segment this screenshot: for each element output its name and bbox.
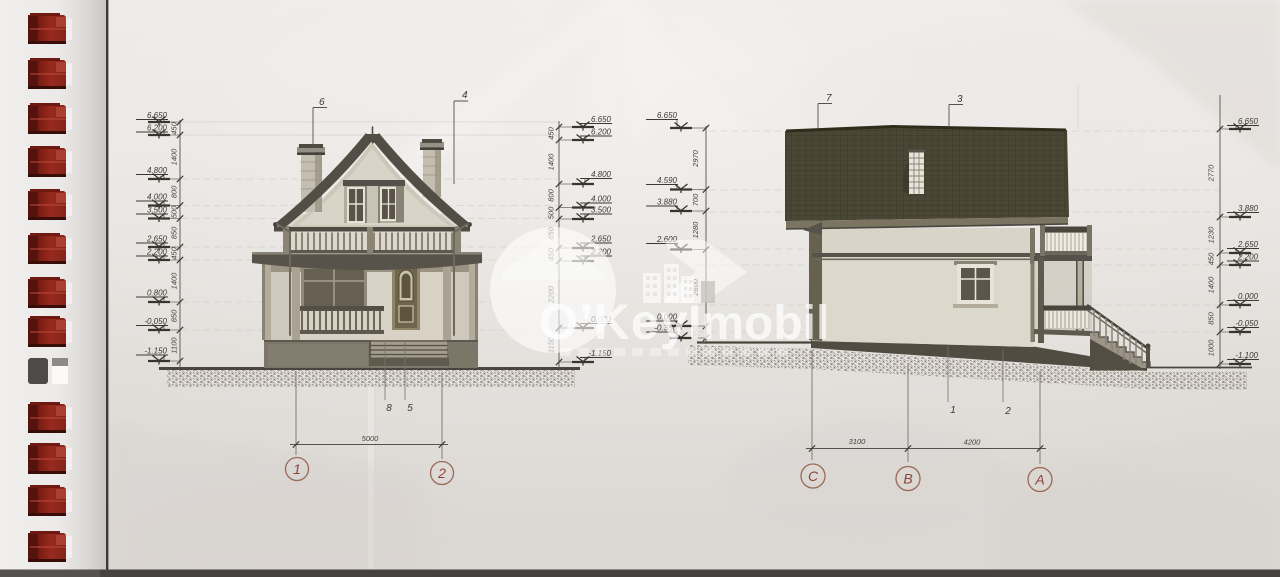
svg-text:6.650: 6.650 [147,111,168,120]
svg-text:2.200: 2.200 [1237,253,1259,262]
svg-text:4.000: 4.000 [591,195,612,204]
svg-text:B: B [903,471,912,487]
svg-text:C: C [808,468,819,484]
svg-text:O’Key: O’Key [539,294,689,350]
svg-text:4: 4 [462,90,468,101]
svg-text:6.650: 6.650 [591,115,612,124]
svg-text:500: 500 [170,205,179,218]
svg-text:-0.050: -0.050 [1235,319,1258,328]
svg-text:800: 800 [547,188,556,201]
svg-text:2: 2 [1004,406,1011,417]
svg-text:3.880: 3.880 [1238,204,1259,213]
svg-text:0.800: 0.800 [147,289,168,298]
svg-text:-0.050: -0.050 [144,317,167,326]
svg-text:Imobil: Imobil [688,297,829,350]
svg-text:5: 5 [407,403,413,414]
svg-text:6: 6 [319,97,325,108]
svg-text:-1.150: -1.150 [144,347,167,356]
svg-text:450: 450 [170,121,179,134]
svg-text:6.200: 6.200 [147,124,168,133]
svg-text:2: 2 [437,465,446,481]
svg-text:5000: 5000 [362,434,380,443]
svg-text:3100: 3100 [849,437,867,446]
svg-text:850: 850 [170,309,179,322]
svg-text:1400: 1400 [170,272,179,290]
svg-text:700: 700 [691,193,700,206]
svg-text:1: 1 [950,405,956,416]
svg-text:2970: 2970 [691,149,700,168]
svg-text:6.650: 6.650 [657,111,678,120]
svg-text:0.000: 0.000 [1238,292,1259,301]
svg-text:1100: 1100 [170,337,179,354]
svg-text:1400: 1400 [547,153,556,171]
svg-text:4.800: 4.800 [591,170,612,179]
svg-text:3.500: 3.500 [591,206,612,215]
svg-text:A: A [1034,472,1044,488]
svg-text:6.200: 6.200 [591,128,612,137]
svg-text:800: 800 [170,185,179,198]
svg-text:4200: 4200 [964,438,982,447]
svg-text:6.650: 6.650 [1238,117,1259,126]
svg-text:3.880: 3.880 [657,198,678,207]
svg-text:500: 500 [547,206,556,219]
svg-text:2770: 2770 [1207,164,1216,183]
svg-text:450: 450 [547,126,556,139]
svg-text:850: 850 [1207,311,1216,324]
svg-text:8: 8 [386,403,392,414]
svg-text:-1.100: -1.100 [1235,351,1258,360]
svg-text:850: 850 [170,226,179,239]
svg-text:450: 450 [1207,252,1216,265]
svg-text:1000: 1000 [1207,339,1216,357]
svg-text:2.650: 2.650 [1237,240,1259,249]
svg-text:7: 7 [826,93,832,104]
svg-text:1: 1 [293,461,301,477]
svg-text:4.590: 4.590 [657,176,678,185]
svg-text:1400: 1400 [170,148,179,166]
svg-text:3: 3 [957,94,963,105]
svg-text:450: 450 [170,246,179,259]
svg-text:1280: 1280 [691,221,700,239]
svg-text:1400: 1400 [1207,276,1216,294]
svg-text:1230: 1230 [1207,226,1216,244]
